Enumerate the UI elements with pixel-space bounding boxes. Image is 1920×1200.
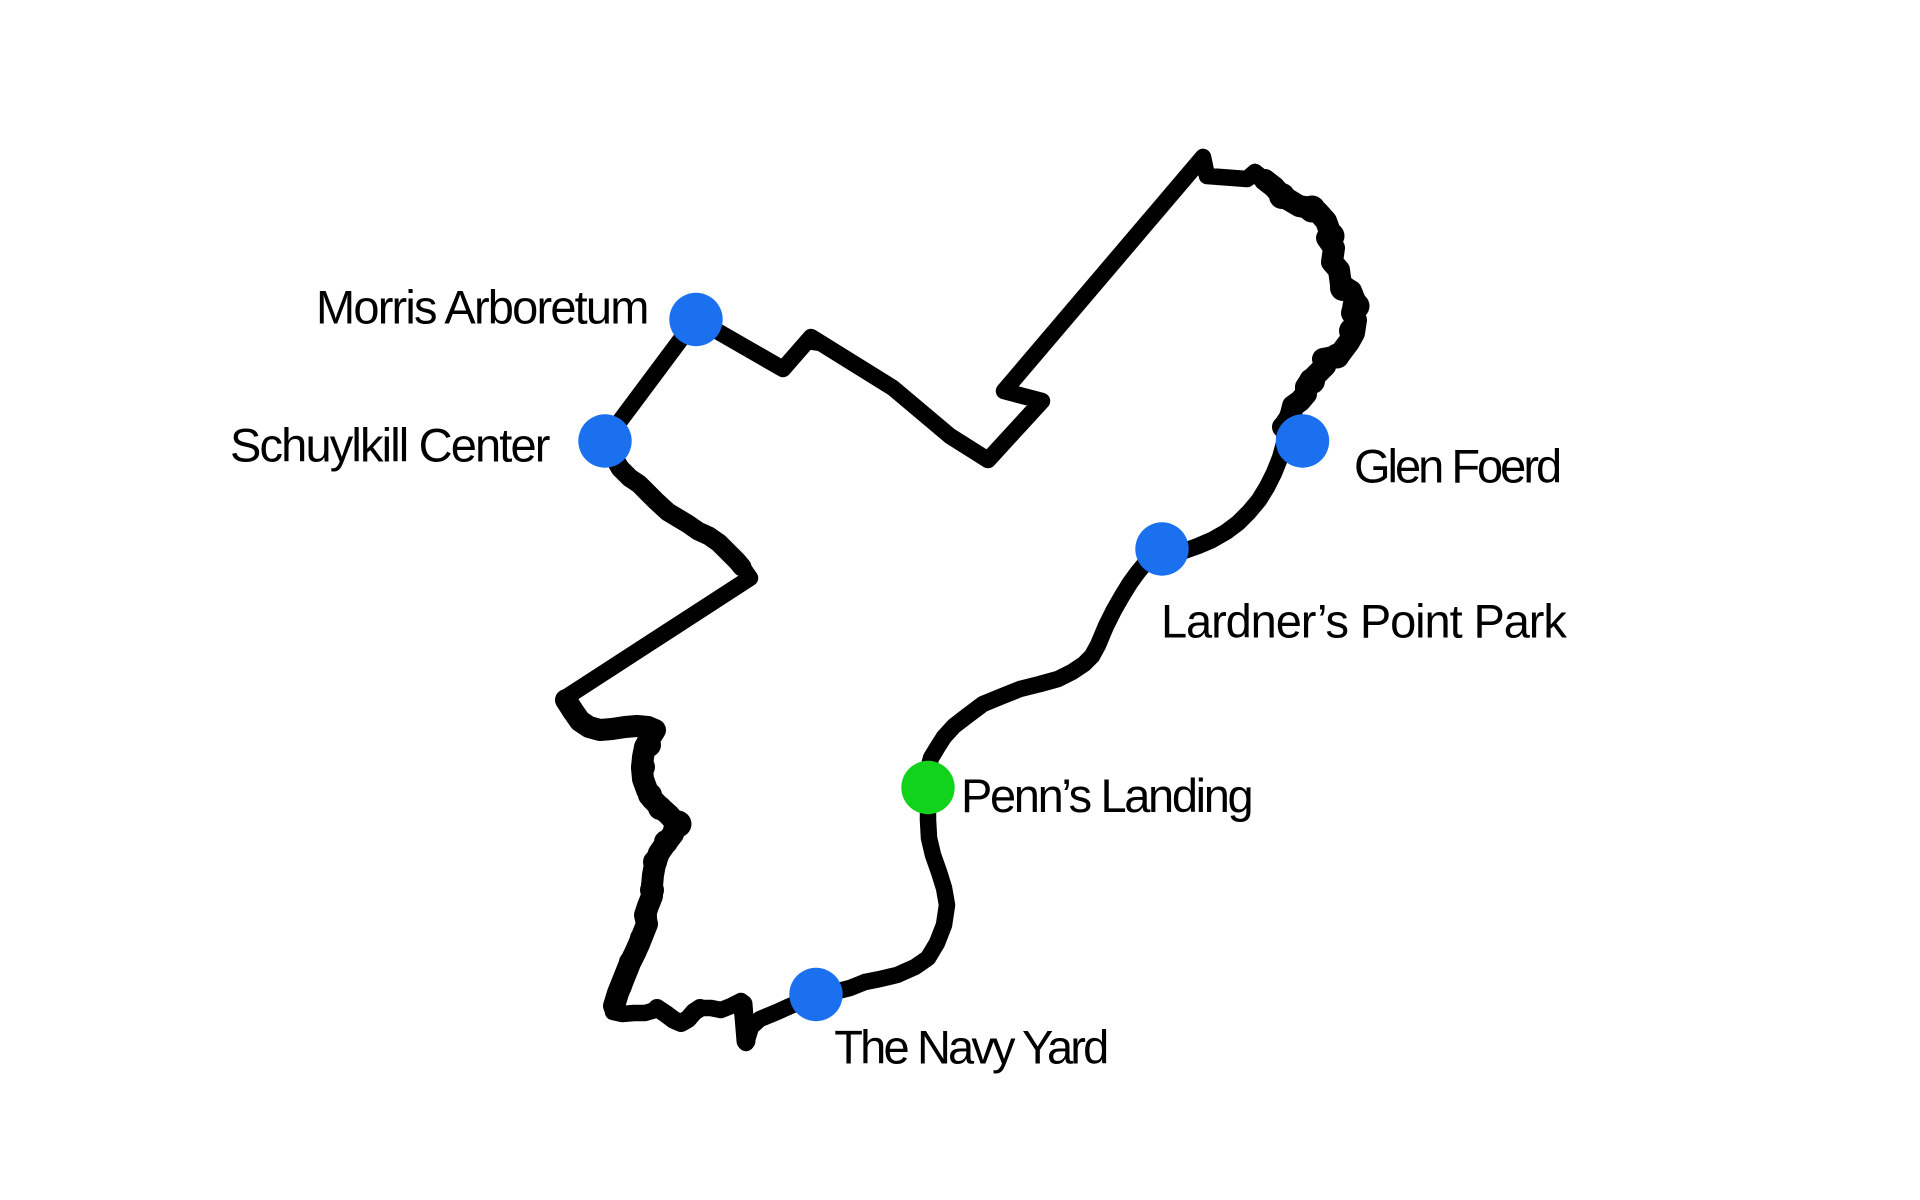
svg-text:Morris Arboretum: Morris Arboretum [316, 281, 648, 334]
svg-text:Lardner’s Point Park: Lardner’s Point Park [1161, 595, 1567, 648]
svg-text:Glen Foerd: Glen Foerd [1354, 440, 1560, 493]
svg-text:The Navy Yard: The Navy Yard [834, 1021, 1107, 1074]
svg-text:Schuylkill Center: Schuylkill Center [230, 419, 550, 472]
svg-text:Penn’s Landing: Penn’s Landing [961, 769, 1252, 822]
